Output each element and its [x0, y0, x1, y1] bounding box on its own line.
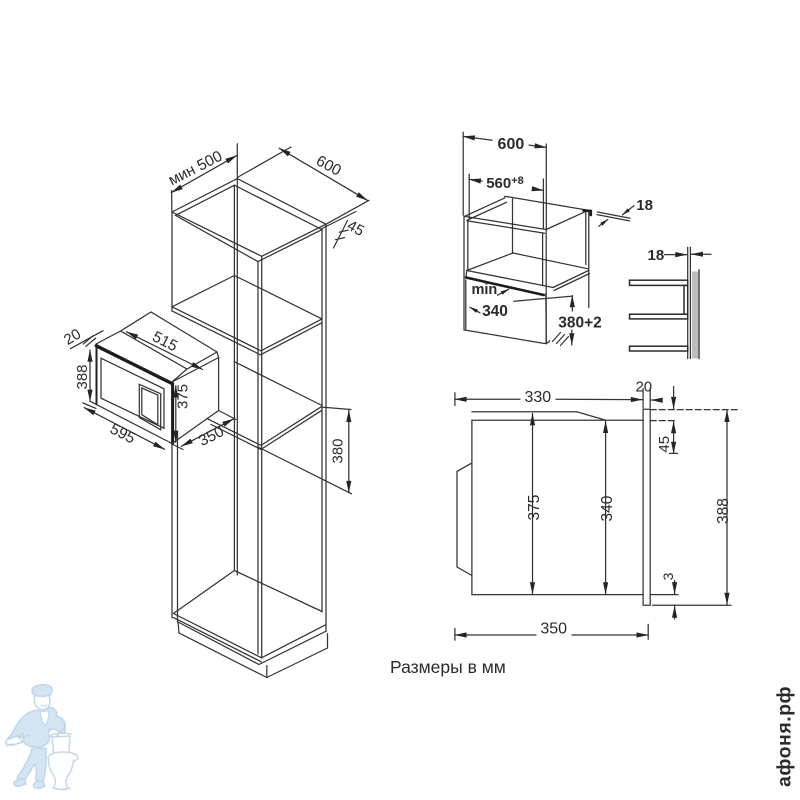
- svg-text:20: 20: [61, 326, 84, 349]
- svg-text:388: 388: [715, 498, 732, 524]
- svg-text:515: 515: [149, 328, 180, 355]
- svg-text:560+8: 560+8: [486, 175, 524, 192]
- svg-text:45: 45: [656, 436, 673, 453]
- svg-text:18: 18: [636, 197, 653, 214]
- svg-text:388: 388: [74, 364, 91, 389]
- svg-text:600: 600: [498, 136, 525, 153]
- svg-text:афоня.рф: афоня.рф: [774, 686, 796, 787]
- svg-text:330: 330: [524, 389, 551, 406]
- svg-text:min: min: [472, 282, 498, 298]
- svg-text:375: 375: [175, 384, 192, 409]
- svg-text:375: 375: [526, 495, 543, 521]
- svg-text:20: 20: [635, 379, 652, 396]
- svg-text:Размеры в мм: Размеры в мм: [390, 657, 506, 677]
- svg-text:600: 600: [313, 152, 344, 179]
- svg-text:380+2: 380+2: [558, 315, 602, 332]
- svg-text:380: 380: [330, 438, 347, 463]
- svg-text:мин 500: мин 500: [166, 148, 226, 190]
- svg-text:340: 340: [599, 495, 616, 521]
- svg-text:18: 18: [648, 247, 665, 264]
- svg-text:350: 350: [540, 621, 567, 638]
- svg-text:3: 3: [660, 572, 676, 580]
- svg-text:595: 595: [107, 421, 138, 448]
- svg-text:340: 340: [482, 303, 508, 320]
